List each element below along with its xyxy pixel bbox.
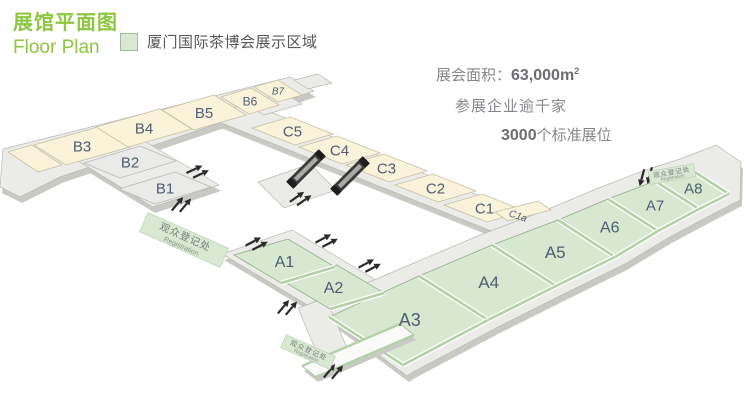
hall-label-a8: A8: [684, 181, 702, 198]
registration-badge: 观众登记处Registration: [139, 213, 228, 268]
hall-label-a2: A2: [324, 280, 344, 297]
hall-label-c4: C4: [330, 142, 349, 159]
hall-label-a7: A7: [646, 197, 664, 214]
hall-label-b7: B7: [272, 87, 285, 98]
hall-label-c3: C3: [377, 160, 396, 177]
hall-label-c1: C1: [475, 200, 494, 217]
hall-label-b4: B4: [135, 120, 153, 137]
floor-plan-svg: 观众登记处Registration观众登记处Registration观众登记处R…: [0, 0, 751, 400]
hall-label-b5: B5: [195, 105, 213, 122]
floor-plan-page: 展馆平面图 Floor Plan 厦门国际茶博会展示区域 展会面积：63,000…: [0, 0, 751, 400]
hall-label-a4: A4: [478, 273, 499, 292]
hall-label-c2: C2: [426, 180, 445, 197]
hall-label-b3: B3: [73, 138, 91, 155]
hall-label-a5: A5: [545, 243, 566, 262]
hall-label-b2: B2: [121, 154, 139, 171]
hall-label-a3: A3: [399, 310, 421, 330]
hall-label-b1: B1: [156, 180, 174, 197]
escalator-landing: [258, 164, 336, 208]
hall-label-a1: A1: [275, 254, 295, 271]
hall-label-b6: B6: [243, 94, 258, 108]
hall-label-c5: C5: [283, 123, 302, 140]
hall-label-a6: A6: [600, 220, 620, 237]
